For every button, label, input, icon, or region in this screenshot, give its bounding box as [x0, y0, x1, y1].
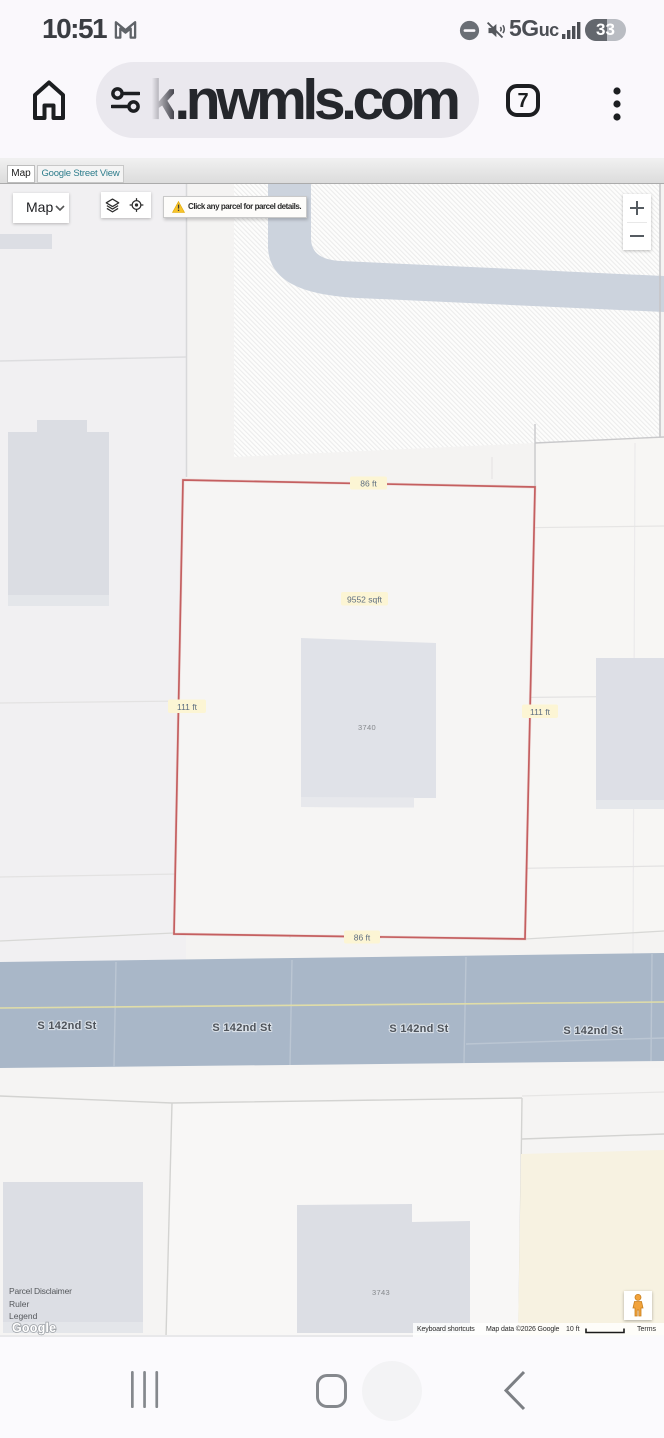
svg-text:S 142nd St: S 142nd St	[212, 1022, 271, 1034]
svg-text:S 142nd St: S 142nd St	[563, 1025, 622, 1037]
svg-text:S 142nd St: S 142nd St	[389, 1023, 448, 1035]
svg-text:9552 sqft: 9552 sqft	[347, 595, 383, 605]
svg-text:111 ft: 111 ft	[530, 707, 551, 717]
svg-text:3743: 3743	[372, 1288, 390, 1297]
svg-text:Google: Google	[12, 1321, 56, 1335]
svg-text:S 142nd St: S 142nd St	[37, 1020, 96, 1032]
svg-text:86 ft: 86 ft	[354, 933, 371, 943]
svg-text:3740: 3740	[358, 723, 376, 732]
svg-text:86 ft: 86 ft	[360, 479, 377, 489]
svg-text:111 ft: 111 ft	[177, 702, 198, 712]
